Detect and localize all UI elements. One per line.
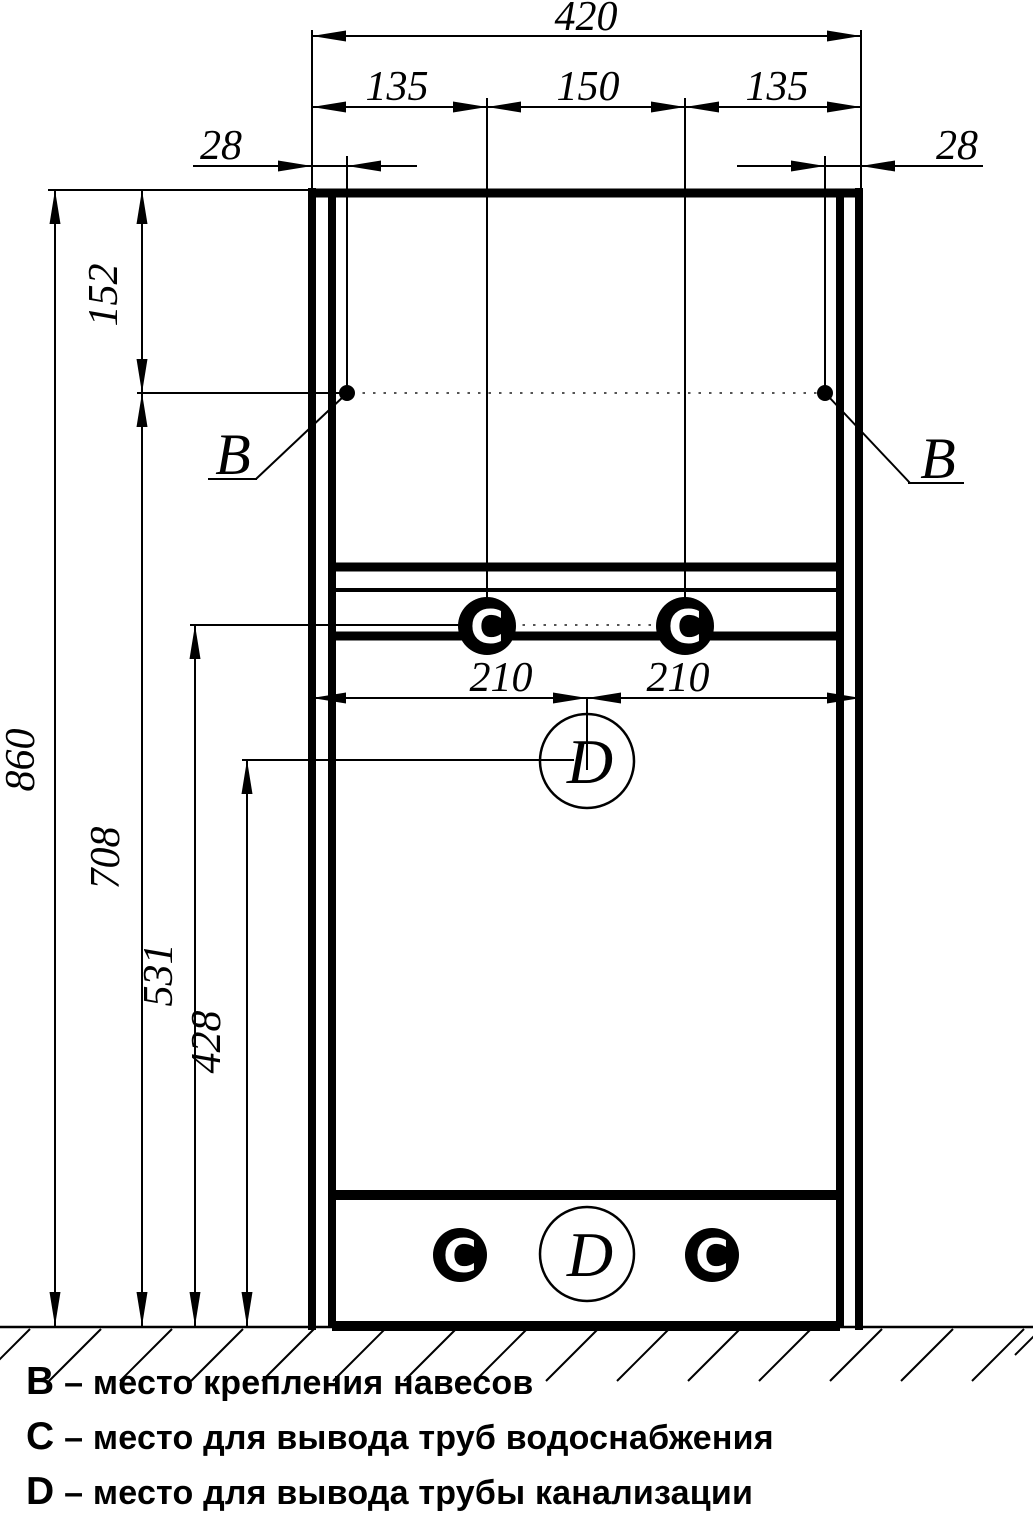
dim-edge-right: 28 — [936, 123, 978, 169]
svg-text:C: C — [668, 600, 702, 654]
hinge-label-left: B — [215, 422, 250, 487]
drain-marker-middle: D — [480, 698, 634, 808]
dim-total-width: 420 — [555, 0, 618, 40]
dim-pipe-level: 708 — [83, 827, 129, 890]
legend-row-drain: D – место для вывода трубы канализации — [26, 1470, 1016, 1514]
legend-text-d: – место для вывода трубы канализации — [64, 1474, 753, 1513]
dim-half-left: 210 — [470, 655, 533, 701]
dim-top-offset: 152 — [81, 264, 127, 327]
dim-edge-left: 28 — [200, 123, 242, 169]
svg-text:C: C — [695, 1229, 729, 1283]
dim-seg-right: 135 — [746, 64, 809, 110]
svg-text:C: C — [470, 600, 504, 654]
svg-text:C: C — [443, 1229, 477, 1283]
legend-text-c: – место для вывода труб водоснабжения — [64, 1419, 774, 1458]
legend-row-hinge: B – место крепления навесов — [26, 1360, 1016, 1404]
extension-lines — [48, 30, 861, 760]
hinge-markers: B B — [208, 385, 964, 491]
cabinet-drawing: 420 135 150 135 28 28 210 210 152 860 70… — [0, 0, 1033, 1524]
dim-seg-left: 135 — [366, 64, 429, 110]
legend-key-c: C — [26, 1415, 54, 1459]
legend-key-d: D — [26, 1470, 54, 1514]
legend-row-water: C – место для вывода труб водоснабжения — [26, 1415, 1016, 1459]
hinge-label-right: B — [920, 426, 955, 491]
legend-key-b: B — [26, 1360, 54, 1404]
legend-text-b: – место крепления навесов — [64, 1364, 533, 1403]
dim-seg-mid: 150 — [557, 64, 620, 110]
dim-half-right: 210 — [647, 655, 710, 701]
dim-mid-level: 531 — [136, 944, 182, 1007]
dim-drain-level: 428 — [184, 1011, 230, 1074]
svg-text:D: D — [566, 726, 613, 797]
dim-total-height: 860 — [0, 729, 44, 792]
bottom-outlets: C C D — [433, 1207, 739, 1301]
dimension-labels: 420 135 150 135 28 28 210 210 152 860 70… — [0, 0, 978, 1074]
mounting-scheme: 420 135 150 135 28 28 210 210 152 860 70… — [0, 0, 1033, 1524]
svg-text:D: D — [566, 1219, 613, 1290]
